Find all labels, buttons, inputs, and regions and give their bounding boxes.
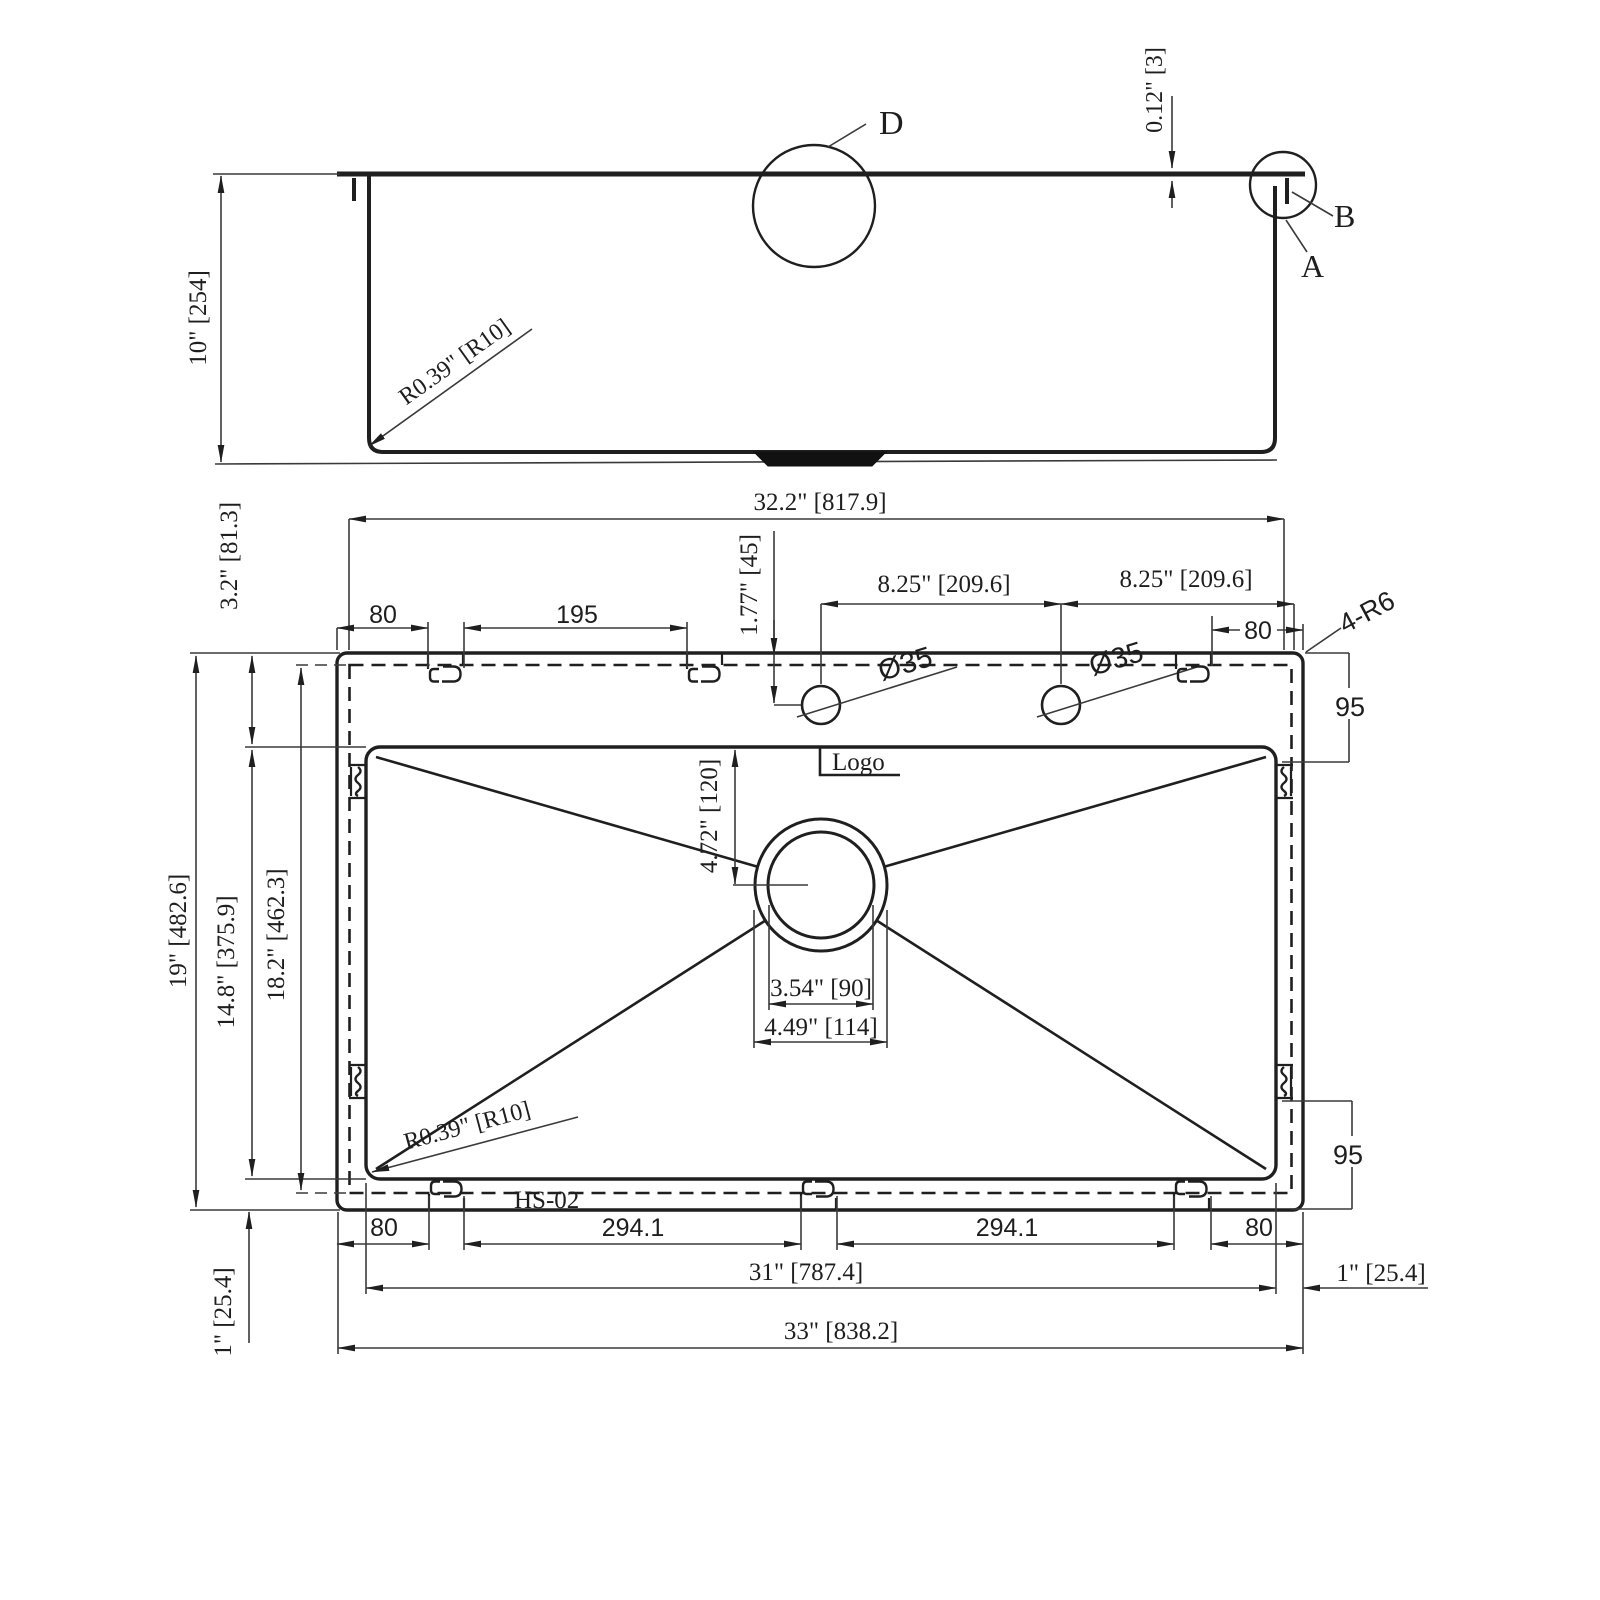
svg-text:3.54" [90]: 3.54" [90] bbox=[770, 975, 872, 1002]
svg-text:1.77" [45]: 1.77" [45] bbox=[736, 534, 763, 636]
svg-text:Logo: Logo bbox=[832, 749, 885, 776]
svg-text:8.25" [209.6]: 8.25" [209.6] bbox=[877, 571, 1010, 598]
svg-text:10" [254]: 10" [254] bbox=[185, 270, 212, 366]
svg-text:31" [787.4]: 31" [787.4] bbox=[749, 1259, 863, 1286]
svg-text:95: 95 bbox=[1333, 1140, 1363, 1170]
svg-text:19" [482.6]: 19" [482.6] bbox=[165, 874, 192, 988]
svg-text:0.12" [3]: 0.12" [3] bbox=[1142, 47, 1168, 133]
svg-text:D: D bbox=[879, 105, 904, 142]
svg-text:18.2" [462.3]: 18.2" [462.3] bbox=[263, 868, 290, 1001]
svg-text:14.8" [375.9]: 14.8" [375.9] bbox=[213, 895, 240, 1028]
svg-text:195: 195 bbox=[556, 601, 598, 629]
svg-text:4.49" [114]: 4.49" [114] bbox=[764, 1014, 877, 1041]
svg-text:95: 95 bbox=[1335, 692, 1365, 722]
svg-text:1" [25.4]: 1" [25.4] bbox=[1336, 1260, 1425, 1287]
svg-text:4.72" [120]: 4.72" [120] bbox=[696, 759, 723, 873]
svg-text:80: 80 bbox=[370, 1214, 398, 1242]
svg-text:80: 80 bbox=[1245, 1214, 1273, 1242]
svg-text:80: 80 bbox=[1244, 617, 1272, 645]
svg-text:B: B bbox=[1334, 198, 1355, 234]
svg-text:HS-02: HS-02 bbox=[514, 1187, 579, 1214]
svg-text:A: A bbox=[1301, 248, 1324, 284]
svg-text:1" [25.4]: 1" [25.4] bbox=[210, 1267, 237, 1356]
svg-text:32.2" [817.9]: 32.2" [817.9] bbox=[753, 489, 886, 516]
svg-text:80: 80 bbox=[369, 601, 397, 629]
svg-text:294.1: 294.1 bbox=[602, 1214, 665, 1242]
svg-text:294.1: 294.1 bbox=[976, 1214, 1039, 1242]
svg-text:3.2" [81.3]: 3.2" [81.3] bbox=[216, 502, 243, 610]
svg-text:8.25" [209.6]: 8.25" [209.6] bbox=[1119, 566, 1252, 593]
svg-text:33" [838.2]: 33" [838.2] bbox=[784, 1318, 898, 1345]
